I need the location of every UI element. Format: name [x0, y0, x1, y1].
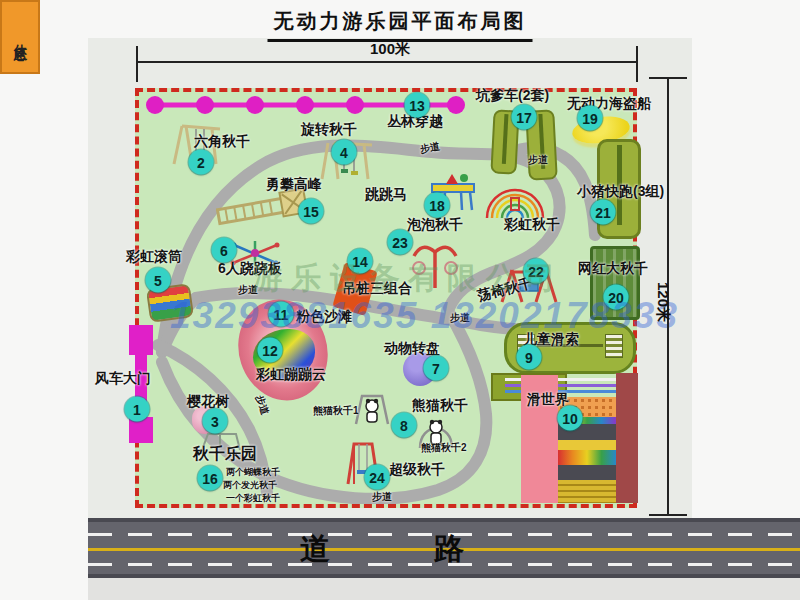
badge-9: 9	[517, 345, 542, 370]
badge-18: 18	[425, 193, 450, 218]
badge-19: 19	[578, 106, 603, 131]
swing-park-detail-3: 一个彩虹秋千	[226, 492, 280, 506]
label-cherry-tree: 樱花树	[187, 393, 229, 411]
label-rainbow-roller: 彩虹滚筒	[126, 248, 182, 266]
rest-area-label: 休息区	[11, 34, 29, 40]
label-swing-park: 秋千乐园	[193, 444, 257, 465]
swing-park-detail-2: 两个发光秋千	[223, 479, 277, 493]
footpath-label: 步道	[528, 153, 548, 167]
badge-8: 8	[392, 413, 417, 438]
badge-20: 20	[604, 285, 629, 310]
top-dimension-label: 100米	[370, 40, 410, 59]
label-rotating-swing: 旋转秋千	[301, 121, 357, 139]
climbing-peak-icon	[216, 188, 308, 230]
label-panda-swing: 熊猫秋千	[412, 397, 468, 415]
badge-7: 7	[424, 356, 449, 381]
badge-4: 4	[332, 140, 357, 165]
park-layout-map: 无动力游乐园平面布局图 100米 120米	[0, 0, 800, 600]
windmill-gate-icon	[129, 325, 153, 355]
label-rainbow-cloud: 彩虹蹦蹦云	[256, 366, 326, 384]
road-label: 道 路	[300, 529, 512, 570]
top-dimension-tick-right	[636, 46, 638, 82]
footpath-label: 步道	[238, 283, 258, 297]
label-kart: 坑爹车(2套)	[476, 87, 549, 105]
right-dimension-tick-top	[649, 77, 687, 79]
badge-10: 10	[558, 406, 583, 431]
right-dimension-tick-bottom	[649, 514, 687, 516]
badge-3: 3	[203, 409, 228, 434]
label-pink-beach: 粉色沙滩	[296, 308, 352, 326]
badge-16: 16	[198, 466, 223, 491]
badge-1: 1	[125, 397, 150, 422]
badge-15: 15	[299, 199, 324, 224]
top-dimension-tick-left	[136, 46, 138, 82]
label-hanging-stake-combo: 吊桩三组合	[342, 280, 412, 298]
label-climbing-peak: 勇攀高峰	[266, 176, 322, 194]
badge-24: 24	[365, 465, 390, 490]
badge-23: 23	[388, 230, 413, 255]
label-windmill-gate: 风车大门	[95, 370, 151, 388]
label-panda-swing-1: 熊猫秋千1	[313, 404, 359, 418]
rainbow-arch-swing-icon	[483, 180, 547, 220]
label-jumping-horse: 跳跳马	[365, 186, 407, 204]
badge-17: 17	[512, 105, 537, 130]
footpath-label: 步道	[372, 490, 392, 504]
label-piglet-run: 小猪快跑(3组)	[577, 183, 664, 201]
label-panda-swing-2: 熊猫秋千2	[421, 441, 467, 455]
badge-22: 22	[524, 259, 549, 284]
sidewalk	[88, 578, 800, 600]
badge-13: 13	[405, 93, 430, 118]
label-hexagon-swing: 六角秋千	[194, 133, 250, 151]
badge-11: 11	[269, 302, 294, 327]
badge-5: 5	[146, 268, 171, 293]
badge-21: 21	[591, 200, 616, 225]
badge-2: 2	[189, 150, 214, 175]
bubble-swing-icon	[410, 238, 460, 290]
label-big-swing: 网红大秋千	[578, 260, 648, 278]
footpath-label: 步道	[450, 311, 470, 325]
label-bubble-swing: 泡泡秋千	[407, 216, 463, 234]
badge-14: 14	[348, 249, 373, 274]
page-title: 无动力游乐园平面布局图	[268, 8, 533, 42]
rest-area: 休息区	[0, 0, 40, 74]
right-dimension-label: 120米	[653, 282, 672, 322]
swing-park-detail-1: 两个蝴蝶秋千	[226, 466, 280, 480]
label-super-swing: 超级秋千	[389, 461, 445, 479]
label-seesaw: 6人跷跷板	[218, 260, 282, 278]
top-dimension-line	[137, 61, 637, 63]
badge-12: 12	[258, 338, 283, 363]
label-rainbow-arch-swing: 彩虹秋千	[504, 216, 560, 234]
badge-6: 6	[212, 238, 237, 263]
slide-world-maroon-strip-icon	[616, 373, 638, 503]
